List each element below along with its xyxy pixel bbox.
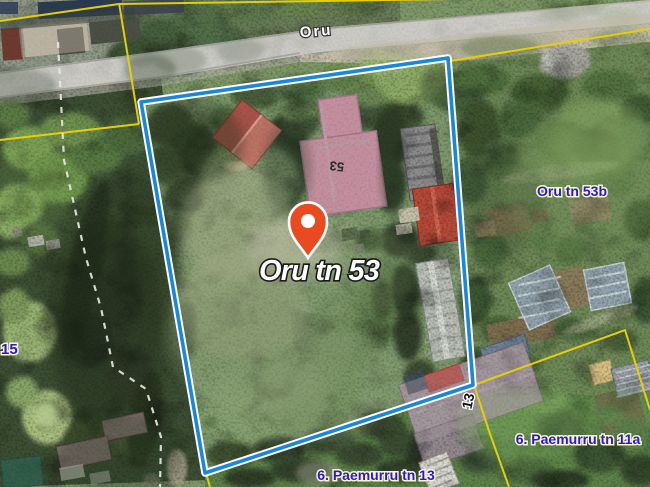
svg-text:6. Paemurru tn 13: 6. Paemurru tn 13 bbox=[317, 467, 435, 483]
svg-text:6. Paemurru tn 11a: 6. Paemurru tn 11a bbox=[516, 431, 641, 447]
svg-text:Oru: Oru bbox=[299, 22, 333, 42]
svg-text:Oru tn 53b: Oru tn 53b bbox=[537, 183, 607, 199]
svg-text:15: 15 bbox=[1, 341, 18, 358]
svg-text:Oru tn 53: Oru tn 53 bbox=[259, 255, 380, 287]
